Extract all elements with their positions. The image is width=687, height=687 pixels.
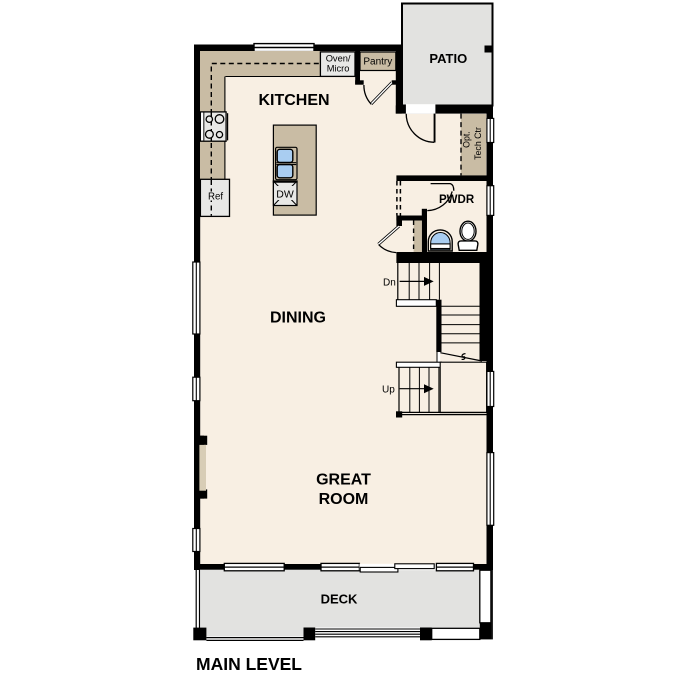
svg-text:Up: Up	[382, 385, 395, 396]
svg-text:PATIO: PATIO	[429, 51, 467, 66]
svg-text:PWDR: PWDR	[439, 194, 475, 206]
svg-text:Dn: Dn	[383, 278, 396, 289]
svg-text:Pantry: Pantry	[363, 57, 392, 68]
svg-text:Ref: Ref	[208, 192, 223, 203]
svg-text:Tech Ctr: Tech Ctr	[473, 127, 483, 160]
svg-text:MAIN LEVEL: MAIN LEVEL	[196, 654, 302, 674]
svg-text:Micro: Micro	[327, 63, 350, 73]
svg-text:Opt.: Opt.	[462, 131, 472, 148]
svg-text:GREAT: GREAT	[316, 472, 371, 489]
svg-text:DECK: DECK	[321, 592, 358, 607]
svg-text:Oven/: Oven/	[326, 53, 351, 63]
svg-text:DW: DW	[276, 189, 294, 201]
svg-text:ROOM: ROOM	[319, 491, 369, 508]
svg-text:KITCHEN: KITCHEN	[258, 92, 329, 109]
svg-text:DINING: DINING	[270, 310, 326, 327]
